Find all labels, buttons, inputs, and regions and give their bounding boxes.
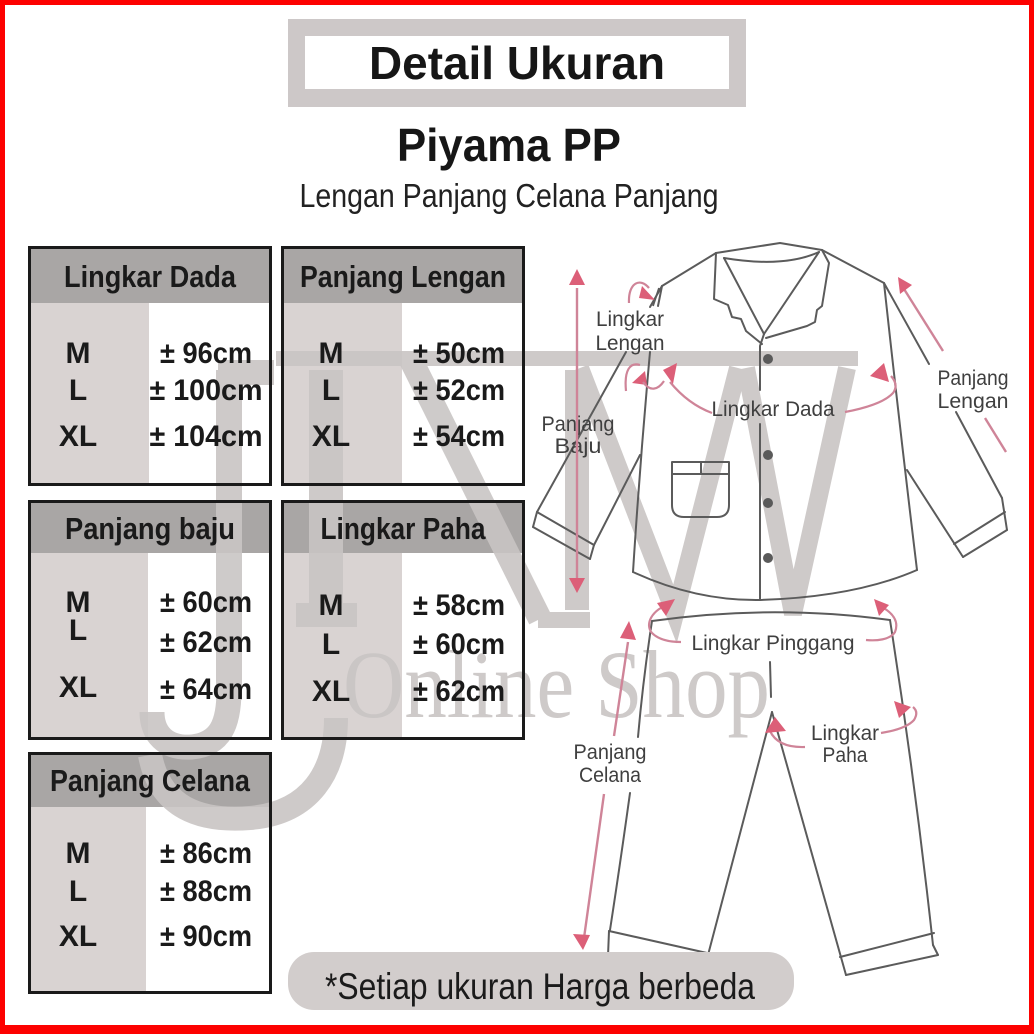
svg-text:Panjang: Panjang (938, 366, 1009, 390)
svg-text:± 58cm: ± 58cm (413, 589, 505, 622)
svg-text:± 52cm: ± 52cm (413, 374, 505, 407)
svg-text:L: L (322, 374, 340, 407)
svg-text:Piyama PP: Piyama PP (397, 119, 621, 171)
svg-text:XL: XL (312, 420, 350, 453)
svg-text:Panjang: Panjang (574, 740, 647, 764)
svg-text:± 100cm: ± 100cm (150, 374, 263, 407)
svg-text:XL: XL (59, 420, 97, 453)
svg-text:± 50cm: ± 50cm (413, 337, 505, 370)
svg-text:Lengan: Lengan (596, 331, 665, 355)
svg-text:± 64cm: ± 64cm (160, 673, 252, 706)
svg-text:M: M (319, 589, 344, 622)
svg-text:± 60cm: ± 60cm (413, 628, 505, 661)
svg-text:Detail Ukuran: Detail Ukuran (369, 37, 665, 89)
svg-text:Panjang baju: Panjang baju (65, 511, 235, 546)
svg-text:± 90cm: ± 90cm (160, 920, 252, 953)
svg-text:*Setiap ukuran Harga berbeda: *Setiap ukuran Harga berbeda (325, 966, 755, 1007)
svg-text:Panjang Celana: Panjang Celana (50, 763, 251, 798)
svg-text:L: L (69, 614, 87, 647)
svg-text:L: L (322, 628, 340, 661)
svg-text:Lingkar Pinggang: Lingkar Pinggang (692, 631, 855, 655)
svg-text:± 60cm: ± 60cm (160, 586, 252, 619)
svg-text:Lengan Panjang Celana Panjang: Lengan Panjang Celana Panjang (300, 177, 719, 214)
svg-text:Lingkar Dada: Lingkar Dada (64, 259, 237, 294)
svg-text:XL: XL (312, 675, 350, 708)
svg-text:M: M (319, 337, 344, 370)
svg-text:L: L (69, 875, 87, 908)
svg-text:± 62cm: ± 62cm (160, 626, 252, 659)
svg-text:XL: XL (59, 671, 97, 704)
svg-text:Lingkar: Lingkar (811, 721, 879, 745)
svg-text:Lingkar Paha: Lingkar Paha (321, 511, 487, 546)
svg-text:± 88cm: ± 88cm (160, 875, 252, 908)
svg-text:Paha: Paha (823, 743, 868, 767)
svg-text:± 86cm: ± 86cm (160, 837, 252, 870)
svg-text:L: L (69, 374, 87, 407)
svg-text:Celana: Celana (579, 763, 641, 787)
svg-text:Lingkar: Lingkar (596, 307, 664, 331)
svg-text:± 54cm: ± 54cm (413, 420, 505, 453)
svg-text:Lengan: Lengan (938, 389, 1009, 413)
svg-text:Panjang Lengan: Panjang Lengan (300, 259, 506, 294)
svg-text:Lingkar Dada: Lingkar Dada (712, 397, 835, 421)
svg-text:XL: XL (59, 920, 97, 953)
svg-text:M: M (66, 837, 91, 870)
svg-text:± 104cm: ± 104cm (150, 420, 263, 453)
svg-text:± 96cm: ± 96cm (160, 337, 252, 370)
svg-text:M: M (66, 337, 91, 370)
svg-text:± 62cm: ± 62cm (413, 675, 505, 708)
